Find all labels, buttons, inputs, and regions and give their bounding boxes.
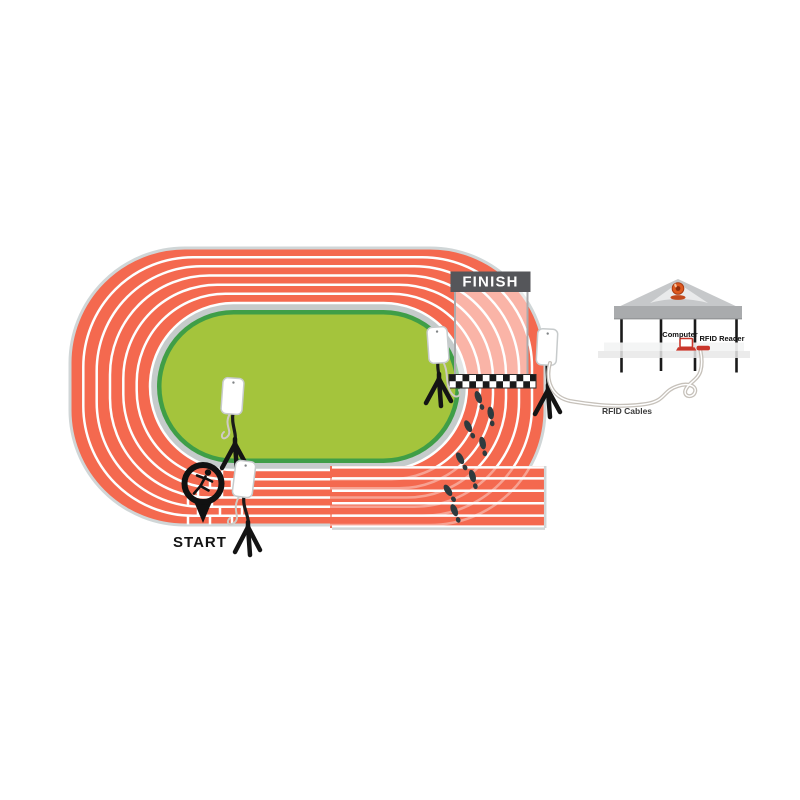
finish-gate: FINISH: [449, 272, 536, 389]
finish-checkered-line: [449, 375, 536, 389]
start-label: START: [173, 534, 227, 551]
cable-icon: [548, 351, 701, 406]
rfid-reader-label: RFID Reader: [699, 334, 744, 343]
infield: [162, 315, 456, 459]
rfid-antenna-icon: [232, 460, 256, 498]
finish-gate-panel: [454, 292, 529, 375]
beacon-light-icon: [671, 283, 686, 300]
rfid-track-diagram: FINISH: [0, 0, 800, 800]
rfid-cables-label: RFID Cables: [602, 406, 652, 416]
rfid-antenna-icon: [221, 377, 244, 414]
rfid-cable-run: [548, 351, 701, 406]
rfid-antenna-icon: [427, 326, 449, 363]
diagram-canvas: FINISH: [0, 0, 800, 800]
finish-label: FINISH: [462, 274, 518, 291]
tent-table: [604, 343, 744, 352]
rfid-antenna-icon: [536, 329, 558, 366]
tripod-icon: [235, 522, 260, 555]
cable-icon: [548, 351, 701, 406]
timing-tent: [598, 279, 750, 373]
computer-label: Computer: [662, 330, 697, 339]
tent-table: [598, 351, 750, 358]
rfid-reader-device-icon: [697, 346, 711, 351]
tent-valance: [614, 306, 742, 319]
